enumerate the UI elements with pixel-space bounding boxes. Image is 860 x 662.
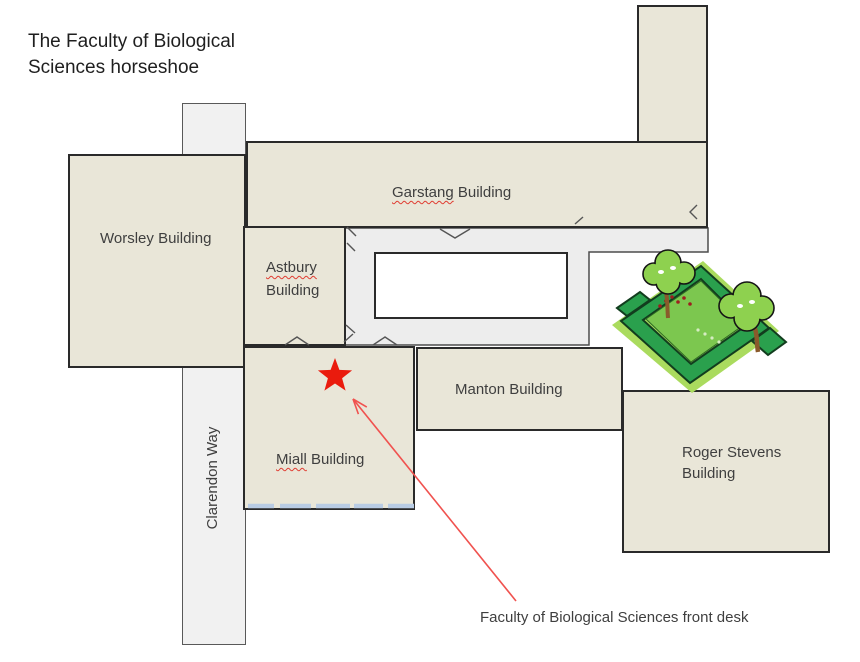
page-title-line1: The Faculty of Biological xyxy=(28,29,235,55)
label-miall-word: Miall xyxy=(276,451,307,468)
horseshoe-courtyard-path xyxy=(345,228,708,345)
road-label-clarendon-way: Clarendon Way xyxy=(204,413,222,543)
campus-map: The Faculty of Biological Sciences horse… xyxy=(0,0,860,662)
label-garstang-word: Garstang xyxy=(392,184,454,201)
label-garstang: Garstang Building xyxy=(392,183,511,203)
label-astbury-rest: Building xyxy=(266,282,319,299)
label-miall: Miall Building xyxy=(276,450,364,470)
label-roger-stevens: Roger Stevens Building xyxy=(682,442,807,484)
tree-icon xyxy=(719,282,774,331)
label-manton: Manton Building xyxy=(455,380,563,400)
label-miall-rest: Building xyxy=(307,451,365,468)
tree-icon xyxy=(643,250,695,294)
building-unlabeled-north xyxy=(637,5,708,143)
label-astbury: Astbury Building xyxy=(266,256,336,302)
building-miall xyxy=(243,346,415,510)
flower-row xyxy=(658,295,692,308)
courtyard-inner-lawn xyxy=(375,253,567,318)
building-worsley xyxy=(68,154,246,368)
garden-path-dots xyxy=(696,328,720,343)
label-garstang-rest: Building xyxy=(454,184,512,201)
page-title: The Faculty of Biological Sciences horse… xyxy=(28,29,235,81)
garden-hedges-icon xyxy=(612,250,786,393)
front-desk-annotation: Faculty of Biological Sciences front des… xyxy=(480,608,748,628)
page-title-line2: Sciences horseshoe xyxy=(28,55,235,81)
label-worsley: Worsley Building xyxy=(100,229,211,249)
label-astbury-word: Astbury xyxy=(266,259,317,276)
